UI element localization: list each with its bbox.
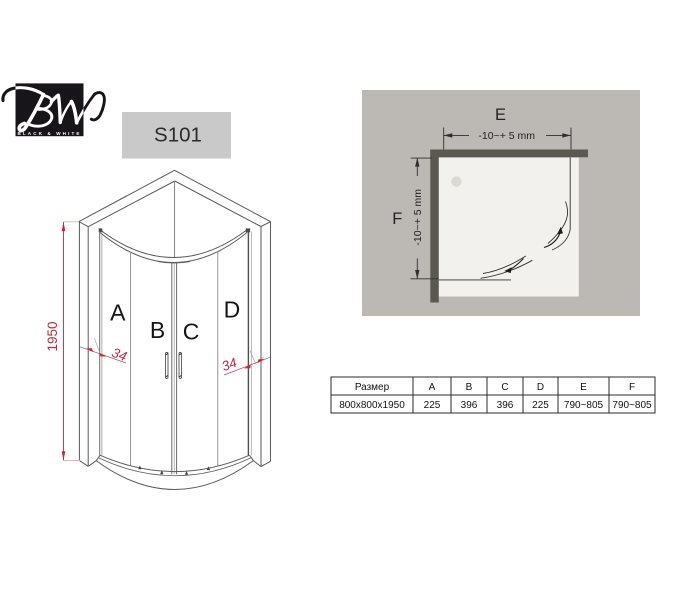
svg-text:800x800x1950: 800x800x1950: [339, 400, 405, 411]
svg-text:A: A: [429, 382, 436, 393]
svg-text:Размер: Размер: [355, 382, 390, 393]
svg-text:790~805: 790~805: [612, 400, 652, 411]
svg-text:A: A: [110, 300, 126, 326]
svg-text:B: B: [466, 382, 473, 393]
svg-text:E: E: [495, 106, 506, 124]
svg-text:S101: S101: [154, 124, 202, 147]
svg-text:C: C: [501, 382, 508, 393]
svg-text:225: 225: [532, 400, 549, 411]
svg-text:D: D: [537, 382, 544, 393]
svg-text:396: 396: [497, 400, 514, 411]
svg-text:-10~+ 5 mm: -10~+ 5 mm: [478, 130, 535, 142]
svg-text:1950: 1950: [45, 321, 60, 351]
svg-text:F: F: [629, 382, 635, 393]
svg-text:-10~+ 5 mm: -10~+ 5 mm: [412, 189, 424, 246]
svg-text:C: C: [183, 319, 200, 345]
svg-text:E: E: [580, 382, 587, 393]
svg-text:34: 34: [110, 345, 129, 364]
svg-text:34: 34: [220, 355, 239, 374]
svg-text:790~805: 790~805: [564, 400, 604, 411]
svg-text:F: F: [392, 210, 402, 228]
svg-text:BLACK & WHITE: BLACK & WHITE: [17, 131, 81, 136]
svg-text:396: 396: [461, 400, 478, 411]
svg-text:D: D: [224, 297, 241, 323]
svg-text:225: 225: [424, 400, 441, 411]
svg-text:B: B: [150, 317, 165, 343]
